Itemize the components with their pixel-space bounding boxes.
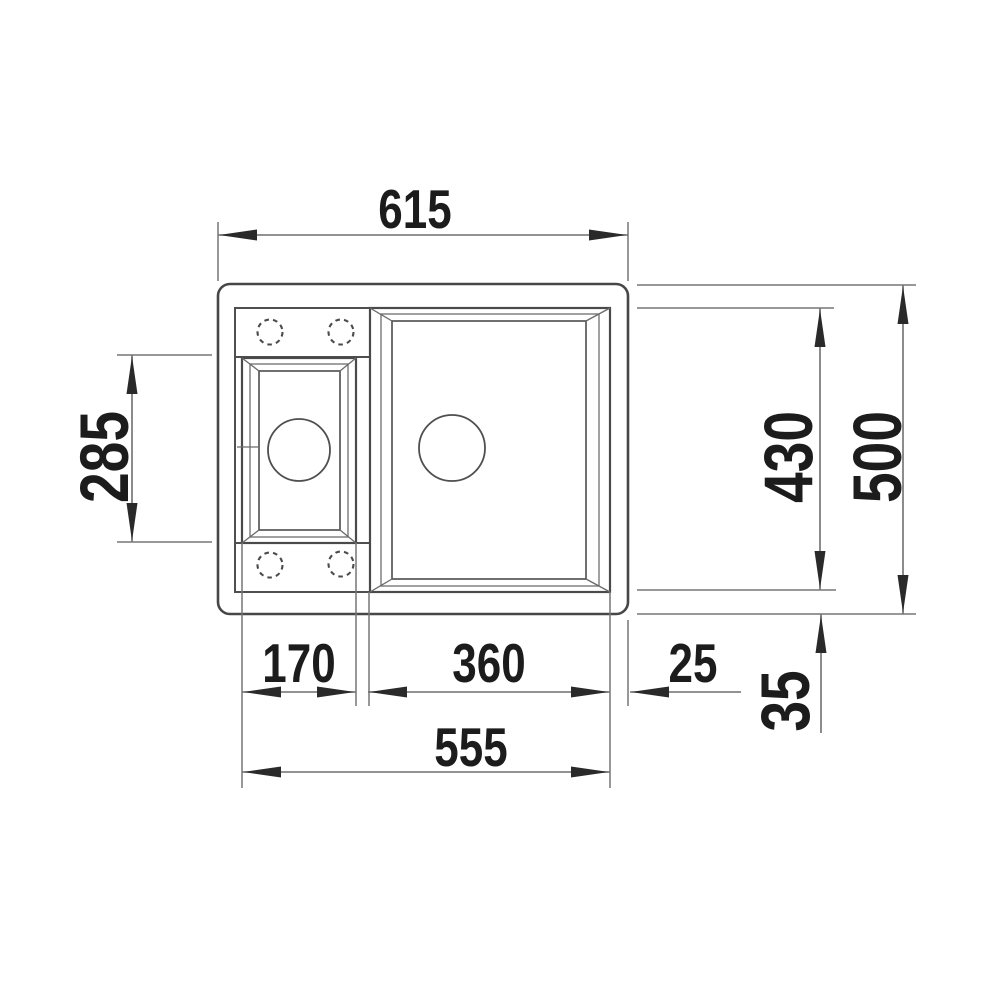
dim-label-width-small-basin: 170: [262, 632, 335, 694]
dim-label-height-left: 285: [66, 411, 143, 503]
arrowhead-up-icon: [815, 309, 826, 347]
dimension-width-small-basin: 170: [242, 543, 356, 788]
dimension-width-top: 615: [218, 178, 628, 281]
sink-outline: [218, 284, 628, 614]
small-basin-wall: [250, 364, 348, 537]
large-basin-rim: [370, 308, 610, 592]
dim-label-height-basin-right: 430: [750, 411, 827, 503]
arrowhead-right-icon: [571, 687, 609, 698]
arrowhead-up-icon: [816, 615, 827, 653]
dim-label-height-total-right: 500: [839, 411, 916, 503]
arrowhead-left-icon: [631, 687, 669, 698]
dim-label-width-top: 615: [378, 178, 451, 240]
arrowhead-down-icon: [127, 503, 138, 541]
large-basin-floor: [392, 321, 586, 579]
arrowhead-left-icon: [243, 767, 281, 778]
small-basin-floor: [259, 371, 340, 530]
arrowhead-right-icon: [589, 230, 627, 241]
arrowhead-right-icon: [571, 767, 609, 778]
dimension-height-basin-right: 430: [637, 308, 836, 590]
dimension-gap-right: 25: [628, 620, 741, 706]
dim-label-margin-bottom-right: 35: [747, 670, 824, 731]
faucet-hole-icon: [329, 320, 354, 345]
small-basin-drain: [268, 419, 330, 481]
technical-drawing-canvas: 615 285 430 500 35 1: [0, 0, 992, 992]
large-basin-drain: [419, 415, 485, 481]
arrowhead-left-icon: [369, 687, 407, 698]
dimension-height-left: 285: [66, 355, 212, 542]
arrowhead-down-icon: [898, 575, 909, 613]
arrowhead-up-icon: [127, 356, 138, 394]
large-basin-wall: [381, 314, 599, 586]
small-basin: [237, 358, 356, 543]
faucet-hole-icon: [329, 552, 354, 577]
dimension-margin-bottom-right: 35: [747, 614, 826, 733]
sink-dimension-drawing: 615 285 430 500 35 1: [0, 0, 992, 992]
dim-label-width-large-basin: 360: [452, 632, 525, 694]
dimension-width-large-basin: 360: [368, 592, 610, 706]
arrowhead-up-icon: [898, 286, 909, 324]
faucet-hole-icon: [258, 320, 283, 345]
arrowhead-left-icon: [219, 230, 257, 241]
dim-label-width-basins-total: 555: [434, 716, 507, 778]
faucet-deck: [235, 308, 370, 592]
deck-column: [235, 308, 370, 592]
dim-label-gap-right: 25: [669, 632, 718, 694]
arrowhead-down-icon: [815, 551, 826, 589]
faucet-hole-icon: [258, 553, 283, 578]
sink-outer-edge: [218, 284, 628, 614]
large-basin: [370, 308, 610, 592]
